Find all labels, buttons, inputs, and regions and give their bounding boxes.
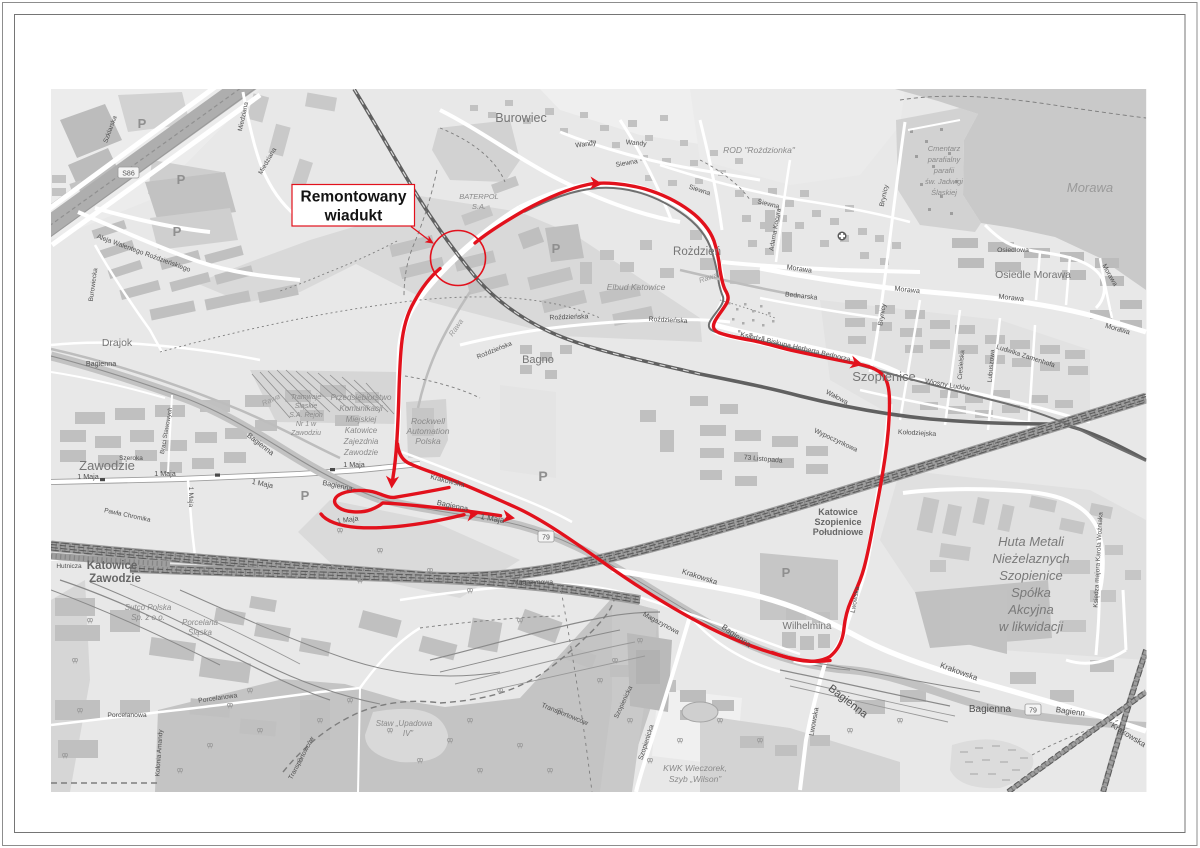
svg-text:Rożdzień: Rożdzień: [673, 246, 721, 258]
svg-text:wiadukt: wiadukt: [324, 208, 383, 225]
svg-text:S.A. Rejon: S.A. Rejon: [289, 412, 323, 419]
svg-text:1 Maja: 1 Maja: [154, 469, 176, 478]
svg-text:79: 79: [1029, 708, 1037, 715]
svg-text:Akcyjna: Akcyjna: [1007, 602, 1054, 617]
svg-text:Szyb „Wilson”: Szyb „Wilson”: [669, 774, 723, 784]
svg-text:parafii: parafii: [933, 166, 955, 175]
svg-text:Cmentarz: Cmentarz: [928, 144, 961, 153]
svg-text:Automation: Automation: [406, 426, 450, 436]
svg-text:Wilhelmina: Wilhelmina: [783, 621, 832, 632]
svg-text:P: P: [538, 468, 547, 484]
svg-text:1 Maja: 1 Maja: [77, 472, 99, 481]
svg-text:Porcelana: Porcelana: [182, 618, 219, 627]
svg-text:1 Maja: 1 Maja: [343, 460, 365, 469]
svg-text:KWK Wieczorek,: KWK Wieczorek,: [663, 763, 727, 773]
svg-text:Drajok: Drajok: [102, 337, 133, 349]
svg-text:Nieżelaznych: Nieżelaznych: [992, 551, 1069, 566]
svg-text:1 Maja: 1 Maja: [187, 487, 194, 508]
svg-text:Katowice: Katowice: [87, 560, 138, 572]
svg-text:Osiedlowa: Osiedlowa: [997, 247, 1029, 254]
svg-text:ROD "Rożdzionka": ROD "Rożdzionka": [723, 145, 796, 155]
svg-text:w likwidacji: w likwidacji: [999, 619, 1064, 634]
svg-text:Porcelanowa: Porcelanowa: [107, 712, 147, 719]
svg-text:Zawodziu: Zawodziu: [290, 430, 321, 437]
svg-text:Katowice: Katowice: [345, 426, 378, 435]
svg-text:Rockwell: Rockwell: [411, 416, 446, 426]
svg-text:parafialny: parafialny: [927, 155, 962, 164]
svg-text:Szopienice: Szopienice: [852, 369, 916, 384]
svg-text:Bagienna: Bagienna: [86, 359, 116, 368]
svg-text:Hutnicza: Hutnicza: [56, 563, 82, 570]
svg-text:Spółka: Spółka: [1011, 585, 1051, 600]
svg-text:P: P: [173, 224, 182, 239]
svg-text:Zawodzie: Zawodzie: [343, 448, 379, 457]
svg-text:Roździeńska: Roździeńska: [549, 313, 588, 321]
svg-text:Sutco Polska: Sutco Polska: [125, 603, 172, 612]
svg-text:Zawodzie: Zawodzie: [89, 573, 141, 585]
svg-text:Szeroka: Szeroka: [119, 455, 143, 462]
svg-text:Bagno: Bagno: [522, 354, 554, 366]
svg-text:Magazynowa: Magazynowa: [513, 579, 553, 586]
svg-text:Miejskiej: Miejskiej: [346, 415, 377, 424]
svg-text:IV”: IV”: [403, 729, 414, 738]
svg-text:św. Jadwigi: św. Jadwigi: [925, 177, 963, 186]
svg-text:Morawa: Morawa: [1067, 180, 1113, 195]
svg-text:Śląska: Śląska: [188, 628, 213, 637]
svg-text:P: P: [177, 172, 186, 187]
svg-text:Huta Metali: Huta Metali: [998, 534, 1065, 549]
svg-text:BATERPOL: BATERPOL: [459, 192, 498, 201]
svg-text:Polska: Polska: [415, 436, 441, 446]
svg-text:Burowiec: Burowiec: [495, 111, 546, 125]
svg-text:Przedsiębiorstwo: Przedsiębiorstwo: [331, 393, 392, 402]
svg-text:Nr 1 w: Nr 1 w: [296, 421, 317, 428]
svg-text:Komunikacji: Komunikacji: [339, 404, 382, 413]
svg-text:S86: S86: [122, 171, 135, 178]
svg-text:P: P: [552, 241, 561, 256]
svg-text:Południowe: Południowe: [813, 527, 864, 537]
svg-text:P: P: [301, 488, 310, 503]
svg-text:Elbud Katowice: Elbud Katowice: [607, 282, 666, 292]
svg-text:P: P: [138, 116, 147, 131]
svg-text:79: 79: [542, 535, 550, 542]
svg-text:P: P: [782, 565, 791, 580]
svg-text:Szopienice: Szopienice: [999, 568, 1063, 583]
svg-text:Śląskie: Śląskie: [295, 401, 318, 410]
svg-text:S.A.: S.A.: [472, 202, 486, 211]
svg-text:Remontowany: Remontowany: [301, 189, 407, 206]
svg-text:Osiedle Morawa: Osiedle Morawa: [995, 269, 1071, 281]
svg-text:Śląskiej: Śląskiej: [931, 188, 957, 197]
svg-text:Staw „Upadowa: Staw „Upadowa: [376, 719, 433, 728]
svg-text:Zajezdnia: Zajezdnia: [343, 437, 379, 446]
svg-text:Szopienice: Szopienice: [814, 517, 861, 527]
svg-text:Sp. z o.o.: Sp. z o.o.: [131, 613, 165, 622]
svg-text:Bagienna: Bagienna: [969, 704, 1012, 715]
svg-text:Katowice: Katowice: [818, 507, 858, 517]
svg-text:Tramwaje: Tramwaje: [291, 394, 321, 401]
